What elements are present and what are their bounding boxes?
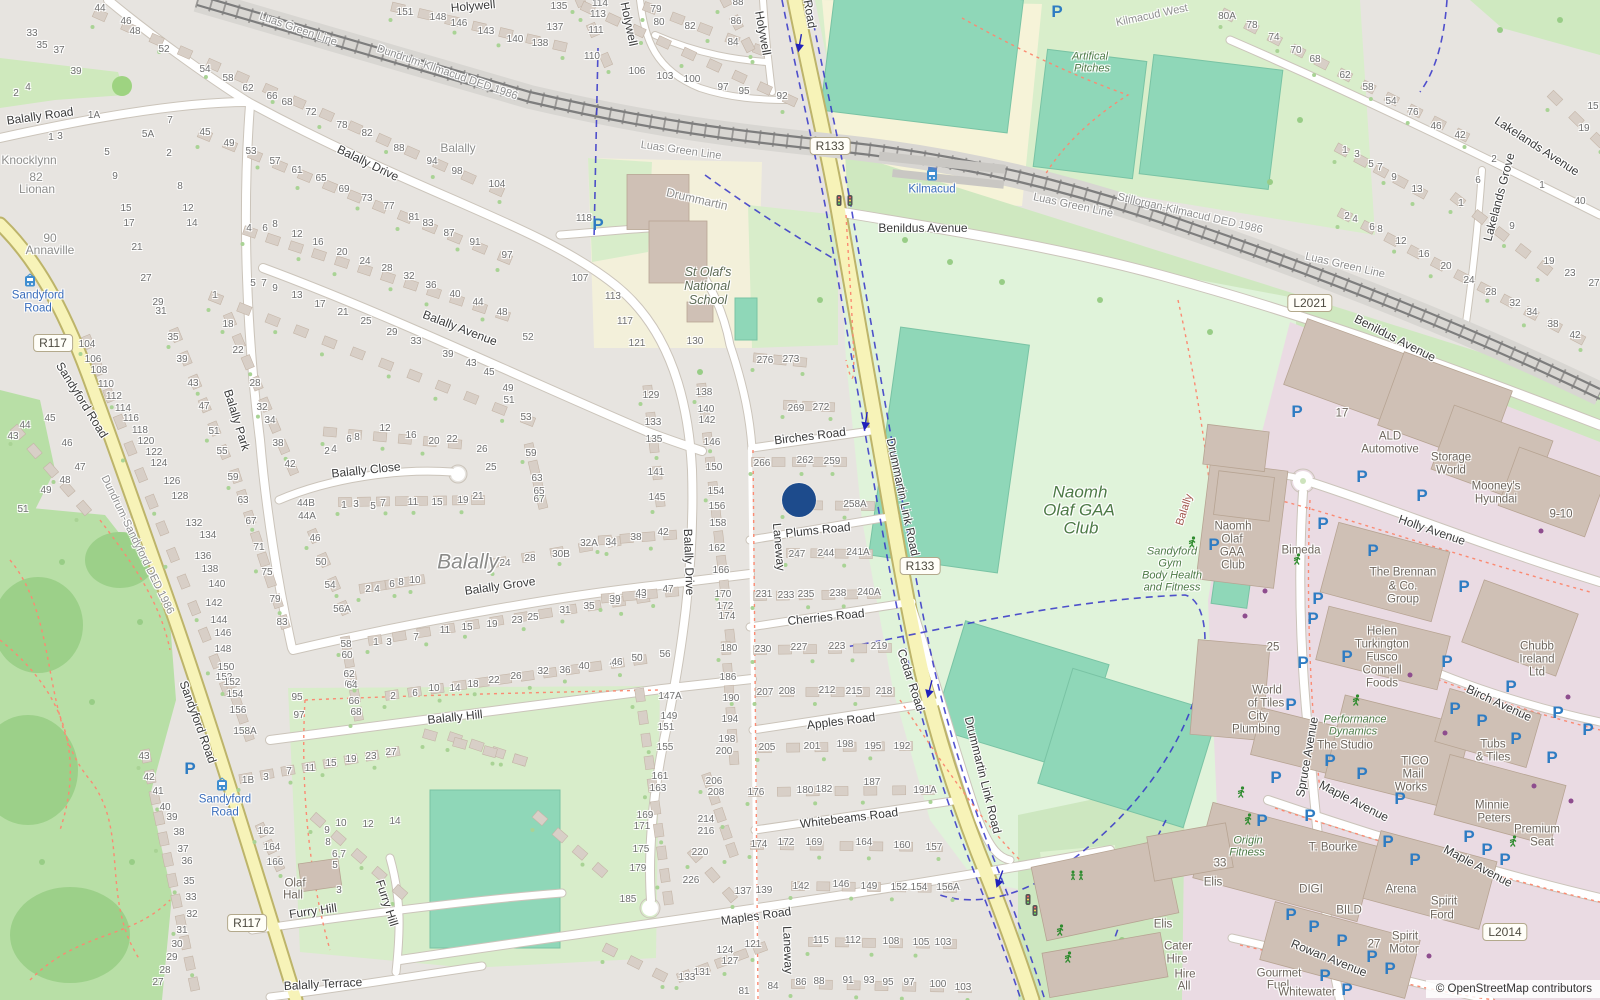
map-viewport[interactable]: Balally RoadBalally DriveBalally DriveBa… — [0, 0, 1600, 1000]
attribution-text[interactable]: © OpenStreetMap contributors — [1436, 983, 1592, 995]
poi-dot-icon — [1263, 589, 1268, 594]
poi-dot-icon — [1243, 614, 1248, 619]
location-marker[interactable] — [782, 483, 816, 517]
route-ref-badge: R117 — [33, 334, 73, 352]
poi-dot-icon — [1569, 799, 1574, 804]
route-ref-badge: L2021 — [1287, 294, 1332, 312]
poi-dot-icon — [1427, 954, 1432, 959]
route-ref-badge: L2014 — [1482, 923, 1527, 941]
route-ref-badge: R117 — [227, 914, 267, 932]
poi-dot-icon — [1443, 731, 1448, 736]
route-ref-badge: R133 — [810, 137, 851, 155]
poi-dot-icon — [1408, 673, 1413, 678]
route-ref-badge: R133 — [900, 557, 941, 575]
attribution[interactable]: © OpenStreetMap contributors — [1426, 980, 1600, 998]
poi-dot-icon — [1532, 784, 1537, 789]
poi-dot-icon — [1566, 695, 1571, 700]
poi-dot-icon — [1539, 529, 1544, 534]
